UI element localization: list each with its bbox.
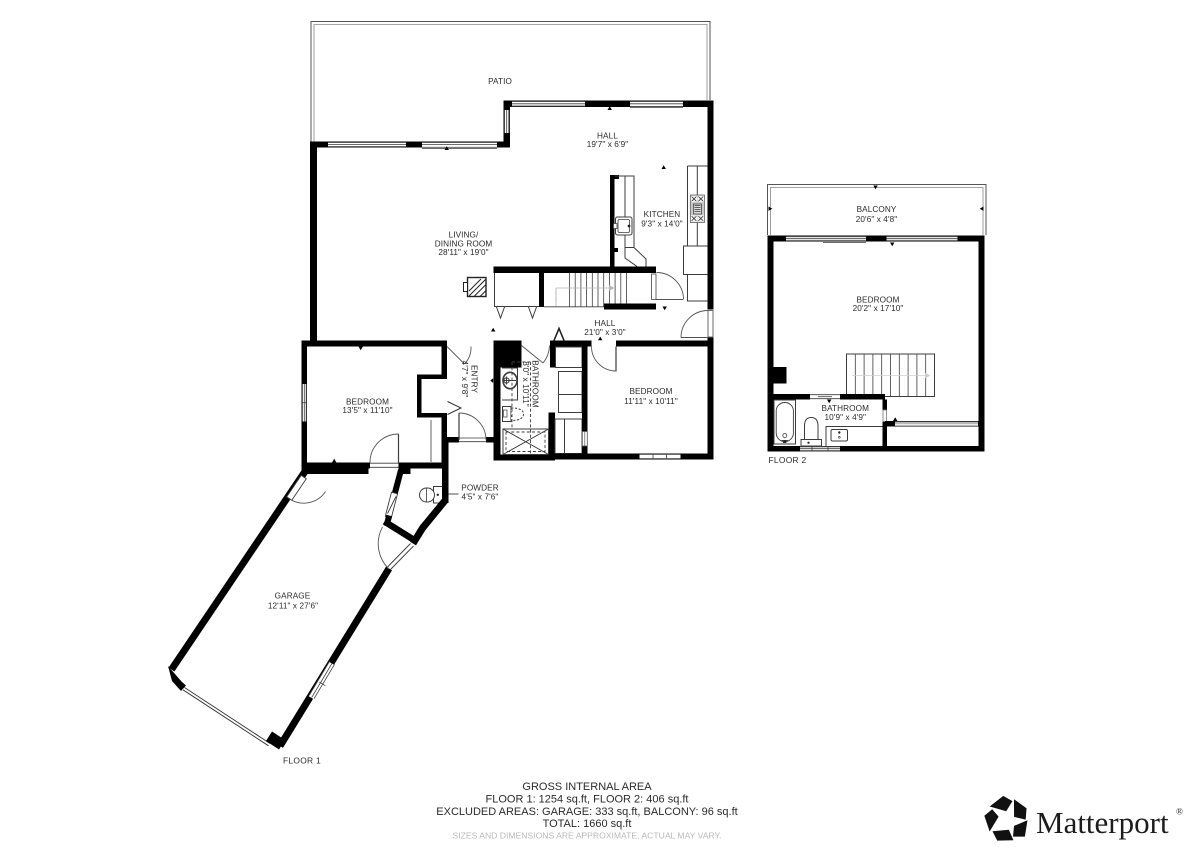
svg-text:TOTAL: 1660 sq.ft: TOTAL: 1660 sq.ft (543, 818, 632, 830)
svg-text:19'7" x 6'9": 19'7" x 6'9" (587, 140, 629, 149)
svg-text:POWDER: POWDER (461, 484, 498, 493)
svg-text:11'11" x 10'11": 11'11" x 10'11" (624, 397, 678, 406)
svg-text:KITCHEN: KITCHEN (644, 210, 681, 219)
svg-text:BEDROOM: BEDROOM (346, 397, 389, 406)
svg-text:BATHROOM: BATHROOM (531, 360, 540, 408)
svg-text:FLOOR 1: 1254 sq.ft, FLOOR 2:: FLOOR 1: 1254 sq.ft, FLOOR 2: 406 sq.ft (486, 794, 689, 806)
svg-text:SIZES AND DIMENSIONS ARE APPRO: SIZES AND DIMENSIONS ARE APPROXIMATE, AC… (452, 830, 721, 840)
svg-text:13'5" x 11'10": 13'5" x 11'10" (342, 406, 392, 415)
svg-text:BEDROOM: BEDROOM (629, 387, 672, 396)
svg-text:DINING ROOM: DINING ROOM (435, 239, 493, 248)
svg-text:BEDROOM: BEDROOM (856, 295, 899, 304)
svg-text:HALL: HALL (597, 131, 618, 140)
svg-text:LIVING/: LIVING/ (449, 231, 479, 240)
svg-text:EXCLUDED AREAS: GARAGE: 333 sq: EXCLUDED AREAS: GARAGE: 333 sq.ft, BALCO… (436, 806, 737, 818)
svg-text:20'2" x 17'10": 20'2" x 17'10" (853, 304, 904, 313)
svg-text:8'0" x 10'11": 8'0" x 10'11" (521, 361, 530, 407)
svg-text:10'9" x 4'9": 10'9" x 4'9" (825, 413, 867, 422)
svg-text:Matterport: Matterport (1036, 805, 1169, 840)
svg-text:21'0" x 3'0": 21'0" x 3'0" (584, 328, 626, 337)
svg-text:FLOOR 2: FLOOR 2 (769, 455, 807, 465)
svg-text:HALL: HALL (595, 319, 616, 328)
svg-text:BALCONY: BALCONY (857, 205, 897, 214)
svg-text:PATIO: PATIO (488, 77, 512, 86)
svg-text:ENTRY: ENTRY (470, 365, 479, 394)
svg-text:4'5" x 7'6": 4'5" x 7'6" (462, 492, 499, 501)
svg-text:4'7" x 9'8": 4'7" x 9'8" (460, 361, 469, 398)
svg-text:28'11" x 19'0": 28'11" x 19'0" (438, 248, 488, 257)
svg-text:12'11" x 27'6": 12'11" x 27'6" (268, 601, 318, 610)
svg-text:GARAGE: GARAGE (275, 592, 311, 601)
svg-text:20'6" x 4'8": 20'6" x 4'8" (856, 215, 898, 224)
svg-text:FLOOR 1: FLOOR 1 (283, 756, 321, 766)
svg-text:®: ® (1176, 807, 1183, 817)
svg-text:9'3" x 14'0": 9'3" x 14'0" (641, 219, 683, 228)
svg-text:BATHROOM: BATHROOM (822, 404, 870, 413)
svg-text:GROSS INTERNAL AREA: GROSS INTERNAL AREA (522, 781, 652, 793)
